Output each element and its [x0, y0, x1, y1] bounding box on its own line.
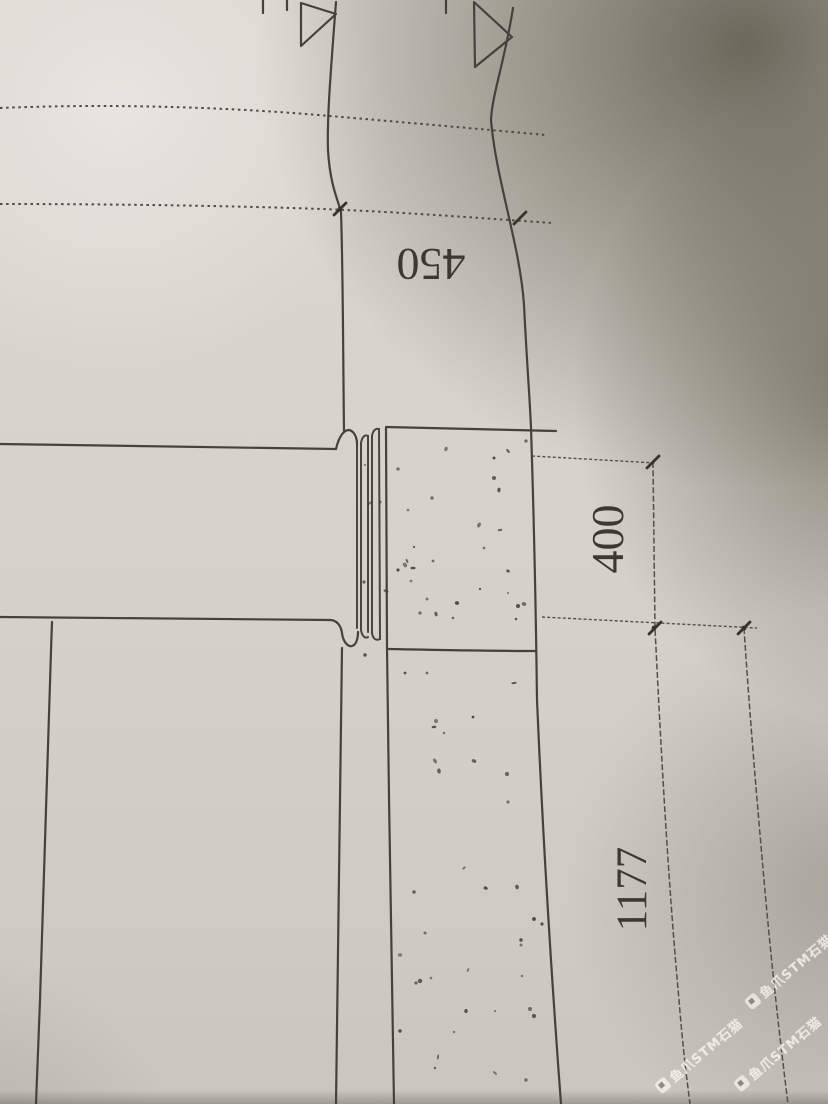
stipple-dot [532, 1014, 536, 1018]
left-vertical-line [36, 622, 52, 1104]
stipple-dot [524, 1078, 527, 1081]
stipple-dot [464, 1009, 468, 1013]
stipple-dot [493, 457, 496, 460]
stipple-dot [443, 732, 445, 734]
stipple-dot [520, 944, 523, 947]
stipple-dot [498, 528, 503, 531]
stipple-dot [407, 509, 410, 512]
stipple-dot [430, 977, 433, 980]
stipple-dot [492, 1071, 497, 1076]
stipple-dot [363, 653, 366, 656]
wall-inner-line [386, 428, 394, 1104]
photo-of-technical-drawing: 450 400 1177 鱼爪STM石猫 鱼爪STM石猫 鱼爪STM石猫 [0, 0, 828, 1104]
section-triangle-icon [301, 3, 336, 46]
stipple-dot [511, 682, 517, 685]
stipple-dot [423, 931, 427, 935]
stipple-dot [437, 1054, 440, 1059]
stipple-dot [362, 580, 365, 583]
stipple-dot [515, 884, 520, 890]
stipple-dot [540, 922, 543, 925]
stipple-dot [430, 496, 433, 499]
bell-ridge-cap [361, 435, 368, 443]
stipple-dot [524, 439, 527, 442]
dim-tick-dot [742, 626, 747, 631]
stipple-dot [455, 601, 460, 605]
stipple-dot [426, 672, 429, 675]
dim-tick-dot [338, 207, 343, 212]
stipple-dot [479, 588, 481, 590]
stipple-dot [471, 758, 477, 763]
bell-ridge-cap [372, 429, 379, 436]
dim-label-450: 450 [397, 239, 466, 290]
stipple-dot [434, 719, 438, 723]
pipe-bottom-line [0, 617, 330, 620]
dimension-line-400-1177 [653, 462, 690, 1104]
bell-ridge-cap [361, 630, 368, 638]
stipple-dot [507, 592, 509, 594]
pipe-top-line [0, 444, 336, 449]
stipple-dot [516, 604, 520, 608]
dim-label-400: 400 [582, 505, 633, 574]
object-lines [0, 2, 561, 1104]
stipple-dot [378, 500, 381, 503]
section-triangle-icon [474, 2, 512, 67]
stipple-dot [398, 1029, 401, 1032]
stipple-dot [432, 560, 435, 563]
stipple-dot [505, 772, 509, 776]
stipple-dot [418, 979, 422, 983]
stipple-dot [398, 953, 402, 957]
stipple-dot [426, 598, 429, 601]
extension-line-400-bottom [542, 617, 757, 628]
stipple-dot [506, 569, 511, 573]
stipple-dot [414, 981, 417, 984]
stipple-dot [483, 547, 486, 550]
stipple-dot [519, 938, 522, 941]
stipple-dot [431, 726, 436, 729]
stipple-dot [412, 890, 415, 893]
stipple-dot [444, 446, 448, 451]
stipple-dot [396, 467, 400, 471]
stipple-dot [453, 1031, 455, 1033]
stipple-dot [396, 568, 399, 571]
hidden-dotted-lines [0, 106, 552, 223]
bell-ridge [379, 429, 380, 639]
stipple-dot [434, 611, 439, 617]
bell-bump-top [336, 430, 357, 449]
stipple-dot [528, 1007, 532, 1011]
block-bottom-line [387, 649, 536, 651]
stipple-dot [466, 968, 469, 973]
stipple-dot [492, 476, 496, 480]
stipple-dot [452, 617, 455, 620]
stipple-dot [405, 559, 409, 564]
dotted-line-lower [0, 204, 552, 223]
bell-ridge-cap [372, 633, 380, 640]
stipple-dot [432, 758, 438, 764]
dim-tick [514, 212, 526, 224]
dotted-line-upper [0, 106, 546, 135]
stipple-dot [476, 522, 481, 528]
stipple-dot [437, 768, 442, 774]
stipple-dot [413, 546, 415, 548]
stipple-dot [506, 800, 509, 803]
stipple-dot [462, 866, 466, 870]
stipple-dot [506, 448, 511, 453]
stipple-dot [521, 601, 527, 606]
stipple-dot [521, 975, 523, 977]
bell-bump-bottom [330, 620, 358, 646]
stipple-dot [497, 487, 501, 492]
dimension-line-outer [744, 628, 788, 1104]
stipple-dot [472, 716, 475, 719]
dimension-ticks [334, 203, 750, 634]
stipple-dot [410, 580, 413, 583]
wall-left-line [336, 648, 342, 1104]
stipple-dot [532, 917, 536, 921]
stipple-dot [515, 618, 518, 621]
drawing-svg: 450 400 1177 [0, 0, 828, 1104]
wall-right-edge [491, 8, 561, 1104]
section-marker-triangles [263, 0, 512, 67]
stipple-dot [410, 567, 415, 570]
dim-label-1177: 1177 [609, 847, 656, 931]
dim-tick-dot [652, 626, 657, 631]
stipple-dot [364, 464, 366, 466]
stipple-dot [494, 1010, 496, 1012]
stipple-dot [404, 672, 407, 675]
vertical-line-left [328, 2, 344, 431]
stipple-dot [418, 611, 422, 614]
extension-line-400-top [532, 456, 656, 463]
stipple-dot [434, 1067, 436, 1069]
